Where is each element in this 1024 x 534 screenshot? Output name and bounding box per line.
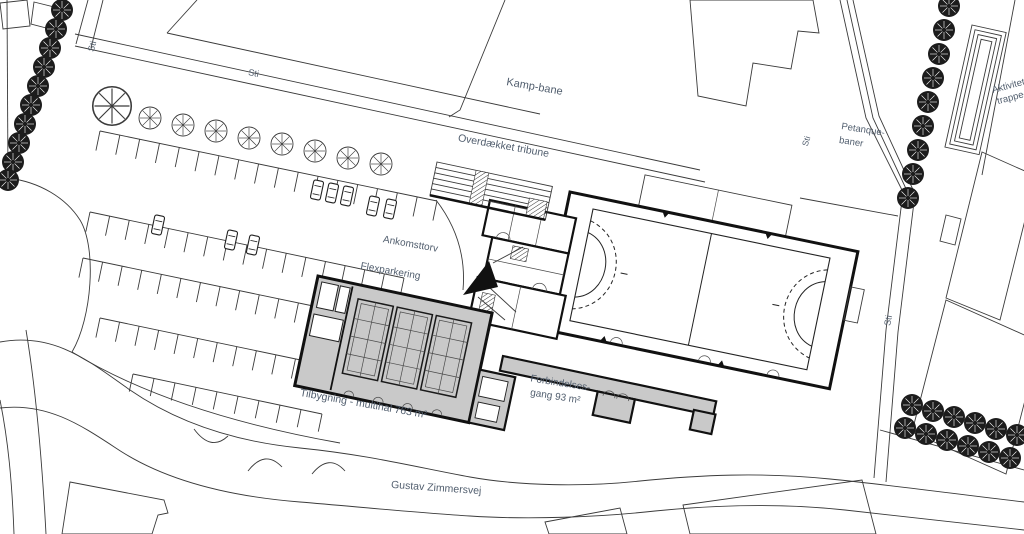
parking-stall-line (234, 396, 238, 414)
parking-stall-line (282, 253, 286, 273)
parking-stall-line (291, 359, 295, 379)
parking-stall-line (433, 201, 437, 221)
parking-stall-line (302, 257, 306, 277)
tree-icon (20, 94, 42, 116)
car-icon (246, 235, 260, 256)
parking-stall-line (213, 392, 217, 410)
car-icon (366, 196, 380, 217)
tree-icon (172, 114, 194, 136)
parking-stall-line (255, 401, 259, 419)
car-icon (310, 180, 324, 201)
sti-top-label: Sti (247, 67, 259, 79)
parking-stall-line (155, 143, 159, 163)
tree-icon (933, 19, 955, 41)
car-icon (340, 186, 354, 207)
parking-stall-line (263, 249, 267, 269)
parking-stall-line (155, 330, 159, 350)
tree-icon (139, 107, 161, 129)
tree-icon (304, 140, 326, 162)
parking-stall-line (106, 216, 110, 236)
parking-stall-line (275, 299, 279, 319)
tree-icon (978, 441, 1000, 463)
tree-icon (999, 447, 1021, 469)
tree-icon (51, 0, 73, 21)
parking-stall-line (233, 347, 237, 367)
parking-stall-line (194, 338, 198, 358)
parking-stall-line (96, 318, 100, 338)
tree-icon (27, 75, 49, 97)
road-island (248, 459, 282, 471)
tree-icon (902, 163, 924, 185)
site-plan-drawing: Sti Sti Kamp-bane Overdækket tribune Pet… (0, 0, 1024, 534)
ankomsttorv-label: Ankomsttorv (382, 234, 439, 254)
parking-stall-line (243, 245, 247, 265)
parking-stall-line (99, 262, 103, 282)
parking-stall-line (318, 414, 322, 432)
parking-stall-line (150, 378, 154, 396)
parking-stall-line (294, 172, 298, 192)
tree-icon (897, 187, 919, 209)
parking-stall-line (354, 185, 358, 205)
tree-icon (33, 56, 55, 78)
tree-icon (370, 153, 392, 175)
parking-stall-line (157, 274, 161, 294)
parking-stall-line (274, 168, 278, 188)
sti-east-label: Sti (882, 314, 894, 326)
parking-stall-line (413, 197, 417, 217)
tree-icon (205, 120, 227, 142)
tree-icon (93, 87, 132, 126)
tree-icon (922, 67, 944, 89)
parking-stall-line (164, 229, 168, 249)
parking-stall-line (177, 278, 181, 298)
parking-stall-line (79, 258, 83, 278)
tree-icon (39, 37, 61, 59)
tree-icon (901, 394, 923, 416)
parking-stall-line (297, 410, 301, 428)
tree-icon (8, 132, 30, 154)
tree-icon (928, 43, 950, 65)
site-plan: Sti Sti Kamp-bane Overdækket tribune Pet… (0, 0, 1024, 534)
connecting-corridor (495, 356, 718, 440)
petanque-label: Petanque- baner (838, 121, 885, 153)
tree-icon (936, 429, 958, 451)
tree-icon (271, 133, 293, 155)
svg-text:baner: baner (838, 135, 864, 150)
tree-icon (45, 18, 67, 40)
parking-stall-line (125, 220, 129, 240)
parking-stall-line (213, 343, 217, 363)
parking-stall-line (195, 152, 199, 172)
parking-row-line (100, 318, 315, 363)
parking-stall-line (174, 334, 178, 354)
flexparkering-label: Flexparkering (360, 261, 422, 282)
existing-hall (542, 161, 878, 392)
tree-icon (985, 418, 1007, 440)
car-icon (224, 230, 238, 251)
parking-stall-line (116, 135, 120, 155)
parking-stall-line (138, 270, 142, 290)
parking-stall-line (175, 147, 179, 167)
parking-stall-line (252, 351, 256, 371)
tree-icon (1006, 424, 1024, 446)
car-icon (383, 199, 397, 220)
tree-icon (894, 417, 916, 439)
parking-stall-line (255, 164, 259, 184)
parking-stall-line (196, 283, 200, 303)
tree-icon (938, 0, 960, 17)
parking-stall-line (115, 322, 119, 342)
tree-icon (14, 113, 36, 135)
tribune-label: Overdækket tribune (457, 132, 550, 160)
parking-stall-line (204, 237, 208, 257)
tree-icon (915, 423, 937, 445)
car-icon (325, 183, 339, 204)
tree-icon (917, 91, 939, 113)
parking-stall-line (96, 131, 100, 151)
parked-cars (151, 180, 397, 256)
kamp-bane-label: Kamp-bane (505, 76, 563, 98)
parking-stall-line (192, 387, 196, 405)
parking-stall-line (118, 266, 122, 286)
parking-stall-line (236, 291, 240, 311)
parking-stall-line (136, 139, 140, 159)
tree-icon (922, 400, 944, 422)
parking-stall-line (145, 224, 149, 244)
tree-icon (964, 412, 986, 434)
parking-stall-line (255, 295, 259, 315)
road-island (312, 463, 345, 474)
parking-row-line (133, 374, 322, 414)
tree-icon (943, 406, 965, 428)
parking-stall-line (294, 303, 298, 323)
road-island (194, 429, 228, 443)
car-icon (151, 215, 165, 236)
parking-stall-line (184, 233, 188, 253)
parking-stall-line (235, 160, 239, 180)
parking-stall-line (86, 212, 90, 232)
tree-icon (238, 127, 260, 149)
parking-stall-line (276, 405, 280, 423)
parking-stall-line (215, 156, 219, 176)
tree-icon (912, 115, 934, 137)
sti-petanque-label: Sti (800, 135, 812, 148)
parking-stall-line (272, 355, 276, 375)
parking-stall-line (171, 383, 175, 401)
parking-stall-line (216, 287, 220, 307)
tree-icon (957, 435, 979, 457)
neighbor-building-ne (690, 0, 819, 106)
gustav-zimmersvej-label: Gustav Zimmersvej (391, 479, 482, 497)
parking-stall-line (135, 326, 139, 346)
tree-icon (337, 147, 359, 169)
tree-icon (907, 139, 929, 161)
